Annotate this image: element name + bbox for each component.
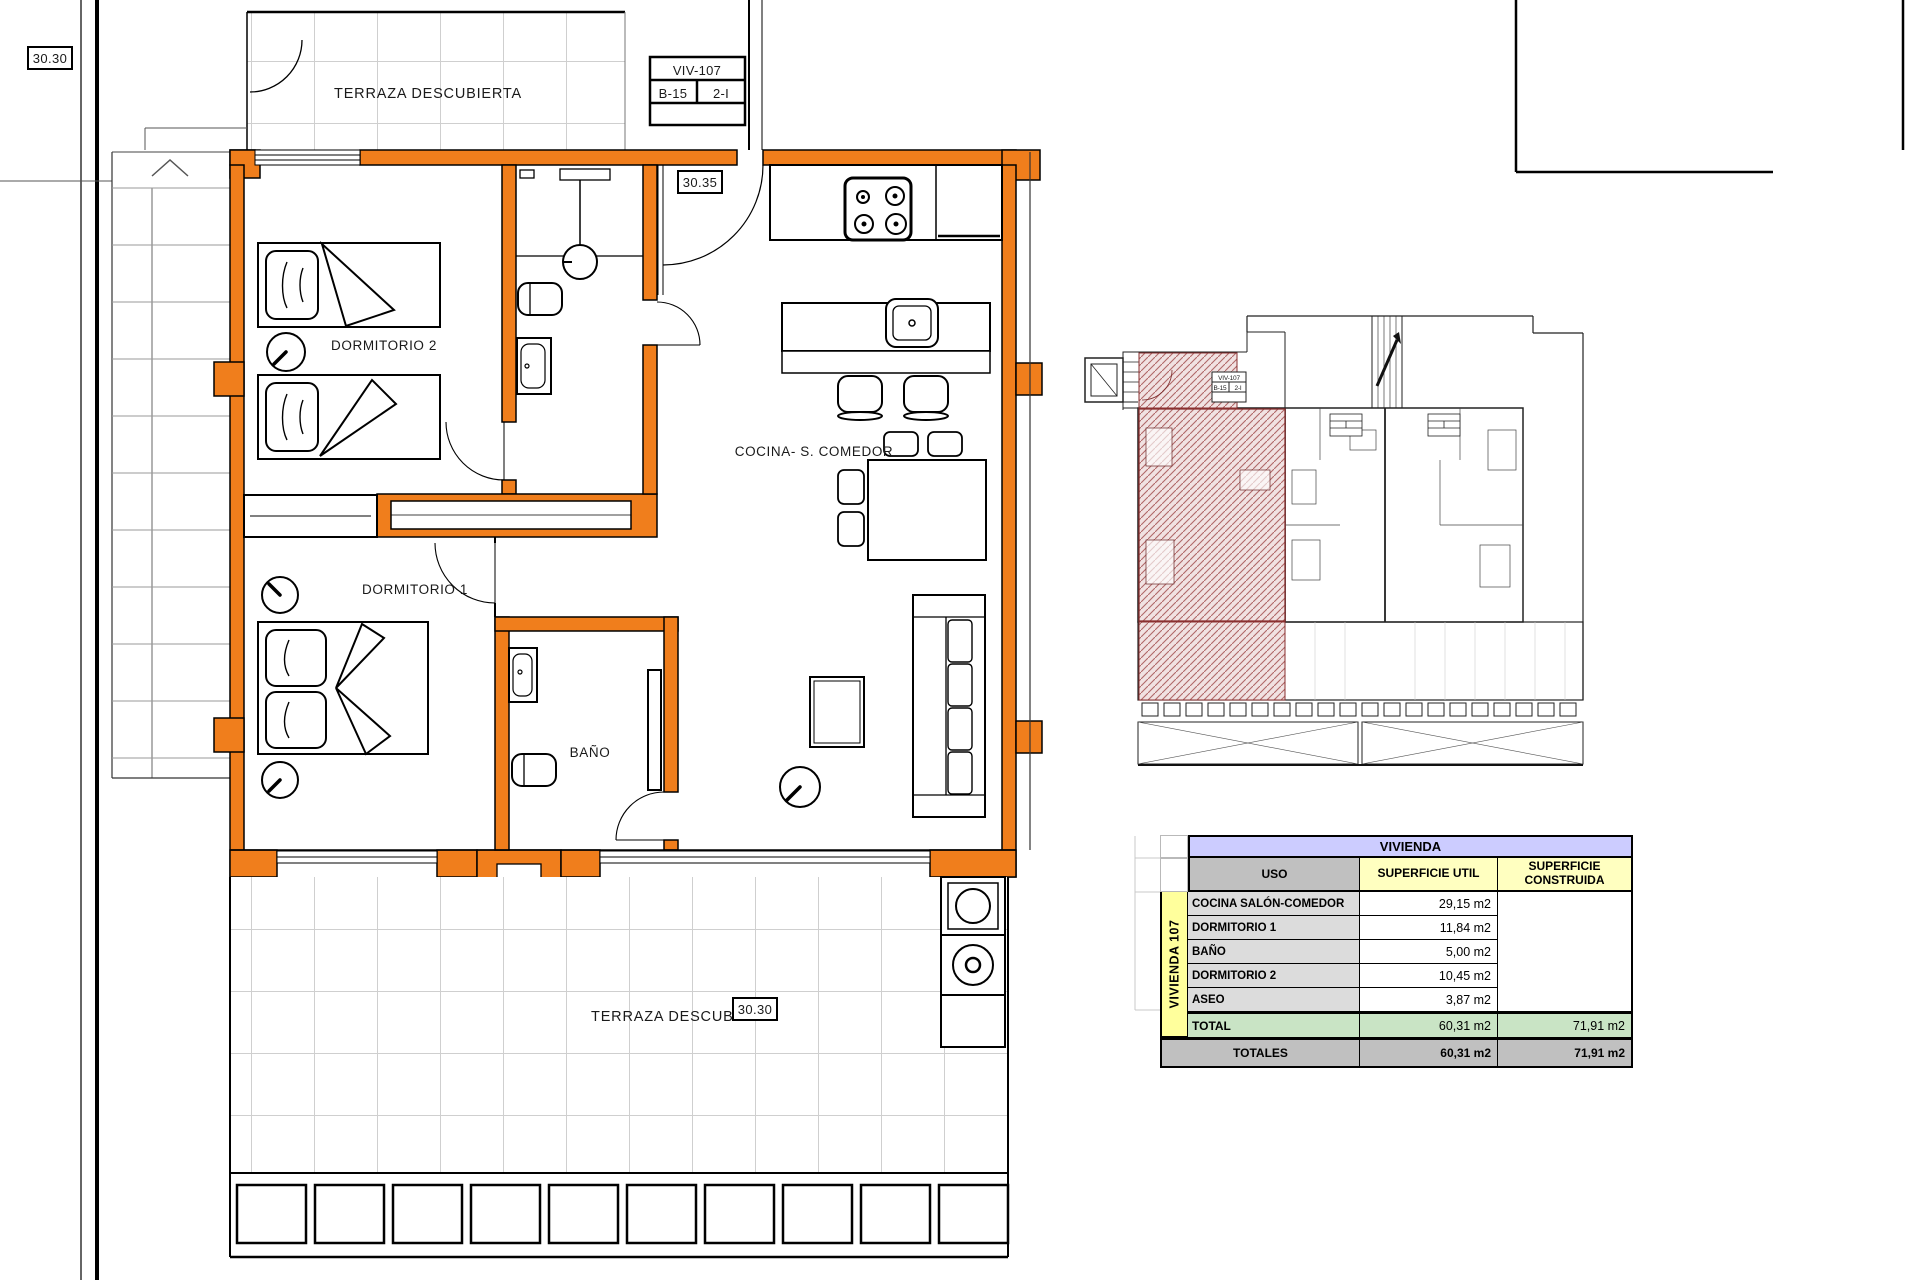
aseo-fixtures bbox=[517, 169, 610, 394]
dining-table bbox=[868, 460, 986, 560]
dorm1-label: DORMITORIO 1 bbox=[362, 582, 468, 597]
ghost-cell bbox=[1160, 835, 1188, 858]
stool bbox=[838, 376, 882, 412]
toilet-icon bbox=[518, 283, 562, 315]
shower-column-icon bbox=[648, 670, 661, 790]
ghost-cell bbox=[1160, 858, 1188, 892]
total-construida: 71,91 m2 bbox=[1498, 1012, 1633, 1038]
unit-label-box: VIV-107 B-15 2-I bbox=[650, 57, 745, 125]
bath-label: BAÑO bbox=[570, 745, 611, 760]
group-label: VIVIENDA 107 bbox=[1168, 920, 1182, 1009]
bath-fixtures bbox=[509, 648, 661, 790]
overview-unit-label-box: VIV-107 B-15 2-I bbox=[1212, 372, 1246, 402]
row-label: DORMITORIO 1 bbox=[1188, 916, 1360, 940]
dorm2-label: DORMITORIO 2 bbox=[331, 338, 437, 353]
overview-minibox-neighbours bbox=[1330, 414, 1460, 436]
laundry-sink-icon bbox=[956, 889, 990, 923]
kitchen-label: COCINA- S. COMEDOR bbox=[735, 444, 894, 459]
overview-plan: VIV-107 B-15 2-I bbox=[1085, 316, 1583, 765]
unit-block: B-15 bbox=[659, 86, 688, 101]
overview-planters bbox=[1142, 703, 1576, 716]
row-value: 5,00 m2 bbox=[1360, 940, 1498, 964]
row-label: BAÑO bbox=[1188, 940, 1360, 964]
unit-floor: 2-I bbox=[713, 86, 729, 101]
terrace-bottom: TERRAZA DESCUBIERTA 30.30 bbox=[230, 877, 1008, 1257]
row-label: ASEO bbox=[1188, 988, 1360, 1012]
overview-highlighted-unit bbox=[1139, 353, 1285, 700]
areas-table: VIVIENDA USO SUPERFICIE UTIL SUPERFICIE … bbox=[1160, 835, 1633, 1068]
dorm2-door-arc bbox=[446, 422, 504, 480]
terrace-top-label: TERRAZA DESCUBIERTA bbox=[334, 86, 522, 102]
table-title: VIVIENDA bbox=[1188, 835, 1633, 858]
overview-unit-block: B-15 bbox=[1214, 385, 1228, 392]
totales-util: 60,31 m2 bbox=[1360, 1038, 1498, 1068]
chair bbox=[838, 512, 864, 546]
overview-unit-id: VIV-107 bbox=[1218, 375, 1240, 382]
row-value: 3,87 m2 bbox=[1360, 988, 1498, 1012]
construida-empty-cell bbox=[1498, 892, 1633, 1012]
hall-elevation: 30.35 bbox=[683, 175, 718, 190]
row-value: 10,45 m2 bbox=[1360, 964, 1498, 988]
col-header-construida-line1: SUPERFICIE bbox=[1528, 860, 1600, 874]
chair bbox=[928, 432, 962, 456]
total-label: TOTAL bbox=[1188, 1012, 1360, 1038]
row-label: COCINA SALÓN-COMEDOR bbox=[1188, 892, 1360, 916]
floorplan-sheet: 30.30 TERRAZA DESCUBIERTA bbox=[0, 0, 1920, 1280]
stair-steps bbox=[112, 188, 230, 758]
total-util: 60,31 m2 bbox=[1360, 1012, 1498, 1038]
terrace-elevation: 30.30 bbox=[738, 1002, 773, 1017]
col-header-util: SUPERFICIE UTIL bbox=[1360, 858, 1498, 892]
elevation-value: 30.30 bbox=[33, 51, 68, 66]
terrace-appliances bbox=[941, 877, 1005, 1047]
elevation-box-top-left: 30.30 bbox=[28, 47, 72, 69]
table-ghost-grid bbox=[1135, 836, 1160, 1010]
bath-toilet-icon bbox=[512, 754, 556, 786]
pergola-beams bbox=[237, 1185, 1008, 1243]
staircase bbox=[112, 152, 230, 778]
totales-label: TOTALES bbox=[1160, 1038, 1360, 1068]
row-value: 29,15 m2 bbox=[1360, 892, 1498, 916]
bath-door-arc bbox=[616, 792, 664, 840]
col-header-construida: SUPERFICIE CONSTRUIDA bbox=[1498, 858, 1633, 892]
group-label-cell: VIVIENDA 107 bbox=[1160, 892, 1188, 1038]
stair-direction-arrow bbox=[152, 160, 188, 176]
dorm1-furniture bbox=[258, 577, 428, 798]
aseo-door-arc bbox=[657, 302, 700, 345]
stool bbox=[904, 376, 948, 412]
row-value: 11,84 m2 bbox=[1360, 916, 1498, 940]
unit-id: VIV-107 bbox=[673, 63, 721, 78]
col-header-construida-line2: CONSTRUIDA bbox=[1525, 874, 1605, 888]
kitchen-furniture bbox=[770, 165, 1002, 817]
chair bbox=[838, 470, 864, 504]
col-header-uso: USO bbox=[1188, 858, 1360, 892]
row-label: DORMITORIO 2 bbox=[1188, 964, 1360, 988]
overview-unit-floor: 2-I bbox=[1235, 385, 1242, 392]
totales-construida: 71,91 m2 bbox=[1498, 1038, 1633, 1068]
